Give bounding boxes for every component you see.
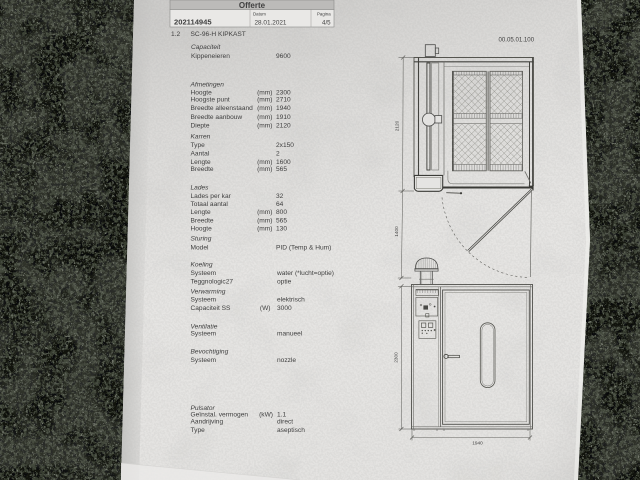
svg-text:1400: 1400: [394, 226, 399, 237]
svg-text:(W): (W): [260, 305, 271, 312]
svg-text:Hoogte: Hoogte: [191, 225, 213, 232]
svg-text:Datum: Datum: [253, 12, 266, 17]
svg-text:Ventilatie: Ventilatie: [191, 324, 218, 331]
svg-text:64: 64: [276, 201, 284, 208]
svg-text:(mm): (mm): [257, 123, 272, 130]
svg-text:Capaciteit SS: Capaciteit SS: [191, 305, 232, 312]
svg-text:(mm): (mm): [257, 159, 272, 166]
svg-text:(kW): (kW): [259, 412, 273, 419]
svg-text:manueel: manueel: [277, 331, 303, 338]
svg-text:2300: 2300: [276, 90, 291, 97]
svg-text:800: 800: [276, 209, 287, 216]
svg-text:Geïnstal. vermogen: Geïnstal. vermogen: [191, 412, 249, 419]
svg-text:1.1: 1.1: [277, 412, 286, 419]
svg-text:00.05.01.100: 00.05.01.100: [499, 37, 535, 44]
svg-text:1940: 1940: [276, 105, 291, 112]
svg-text:1910: 1910: [276, 114, 291, 121]
svg-text:Aandrijving: Aandrijving: [191, 419, 224, 426]
svg-text:1940: 1940: [472, 440, 483, 445]
svg-text:Lades: Lades: [191, 184, 210, 191]
svg-text:32: 32: [276, 193, 284, 200]
svg-text:1600: 1600: [276, 159, 291, 166]
svg-text:aseptisch: aseptisch: [277, 427, 305, 434]
svg-text:Model: Model: [191, 244, 209, 251]
svg-text:direct: direct: [277, 419, 293, 426]
svg-text:2x150: 2x150: [276, 142, 294, 149]
svg-text:(mm): (mm): [257, 217, 272, 224]
svg-text:(mm): (mm): [257, 90, 272, 97]
svg-text:Teggnologic27: Teggnologic27: [191, 279, 234, 286]
svg-text:PID (Temp & Hum): PID (Temp & Hum): [276, 244, 331, 251]
svg-text:Kippeneieren: Kippeneieren: [191, 53, 230, 60]
svg-text:2300: 2300: [394, 352, 399, 363]
svg-text:4/5: 4/5: [322, 19, 331, 26]
svg-text:2120: 2120: [395, 120, 400, 131]
svg-text:Offerte: Offerte: [239, 1, 266, 10]
svg-text:28.01.2021: 28.01.2021: [255, 19, 287, 26]
svg-text:optie: optie: [277, 279, 292, 286]
svg-text:2710: 2710: [276, 97, 291, 104]
svg-text:Hoogte: Hoogte: [191, 90, 213, 97]
svg-text:Lengte: Lengte: [191, 159, 212, 166]
svg-text:2120: 2120: [276, 123, 291, 130]
svg-text:(mm): (mm): [257, 114, 272, 121]
svg-text:Systeem: Systeem: [191, 357, 217, 364]
svg-text:(mm): (mm): [257, 166, 272, 173]
svg-text:Lengte: Lengte: [191, 209, 212, 216]
svg-text:(mm): (mm): [257, 209, 272, 216]
svg-text:9600: 9600: [276, 53, 291, 60]
svg-text:Afmetingen: Afmetingen: [190, 82, 225, 89]
svg-text:Breedte aanbouw: Breedte aanbouw: [191, 114, 243, 121]
svg-text:Systeem: Systeem: [191, 331, 217, 338]
svg-text:Aantal: Aantal: [191, 150, 210, 157]
svg-text:water (*lucht=optie): water (*lucht=optie): [276, 270, 334, 277]
svg-text:202114945: 202114945: [174, 17, 212, 26]
svg-text:Totaal aantal: Totaal aantal: [191, 201, 229, 208]
svg-text:Breedte alleenstaand: Breedte alleenstaand: [191, 105, 254, 112]
svg-text:(mm): (mm): [257, 225, 272, 232]
svg-text:Koeling: Koeling: [191, 262, 213, 269]
svg-text:Systeem: Systeem: [191, 270, 217, 277]
svg-text:Breedte: Breedte: [191, 217, 214, 224]
svg-text:Type: Type: [191, 142, 206, 149]
svg-text:1.2: 1.2: [171, 31, 180, 38]
svg-text:Verwarming: Verwarming: [191, 289, 226, 296]
svg-text:Pagina: Pagina: [317, 12, 331, 17]
svg-text:Karren: Karren: [191, 133, 211, 140]
svg-text:Breedte: Breedte: [191, 166, 214, 173]
svg-text:565: 565: [276, 217, 287, 224]
svg-text:130: 130: [276, 225, 287, 232]
svg-text:Capaciteit: Capaciteit: [191, 44, 221, 51]
svg-text:Bevochtiging: Bevochtiging: [191, 349, 229, 356]
svg-text:(mm): (mm): [257, 105, 272, 112]
svg-text:Hoogste punt: Hoogste punt: [191, 97, 230, 104]
svg-text:Lades per kar: Lades per kar: [191, 193, 232, 200]
svg-text:Diepte: Diepte: [191, 123, 210, 130]
svg-text:Sturing: Sturing: [191, 235, 212, 242]
svg-text:elektrisch: elektrisch: [277, 297, 305, 304]
svg-text:SC-96-H KIPKAST: SC-96-H KIPKAST: [191, 31, 246, 38]
svg-text:2: 2: [276, 150, 280, 157]
svg-text:Type: Type: [191, 427, 206, 434]
svg-text:Systeem: Systeem: [191, 297, 217, 304]
svg-text:565: 565: [276, 166, 287, 173]
svg-text:3000: 3000: [277, 305, 292, 312]
svg-text:nozzle: nozzle: [277, 357, 296, 364]
svg-text:(mm): (mm): [257, 97, 272, 104]
